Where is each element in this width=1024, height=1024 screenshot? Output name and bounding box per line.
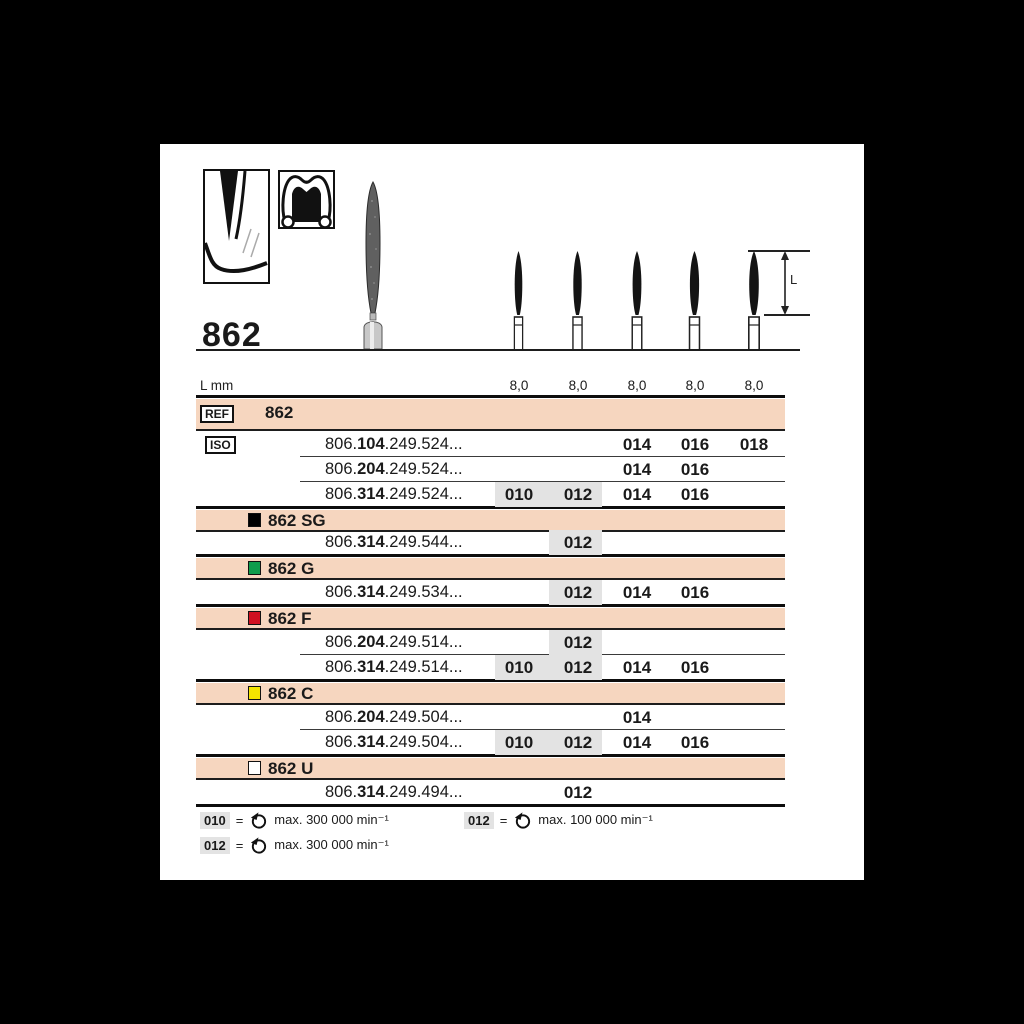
length-value: 8,0 — [745, 378, 764, 393]
grade-color-swatch — [248, 513, 261, 527]
application-thumbnail-margin — [203, 169, 270, 284]
iso-code: 806.314.249.514... — [325, 656, 463, 679]
size-value: 016 — [681, 483, 709, 506]
size-value: 014 — [623, 656, 651, 679]
iso-code: 806.314.249.494... — [325, 781, 463, 804]
size-value: 012 — [564, 483, 592, 506]
legend-item: 012 = max. 100 000 min⁻¹ — [464, 810, 653, 830]
size-value: 014 — [623, 458, 651, 481]
iso-code: 806.314.249.534... — [325, 581, 463, 604]
ref-box: REF — [200, 405, 234, 423]
iso-row: 806.204.249.514... 012 — [196, 631, 785, 654]
length-value: 8,0 — [569, 378, 588, 393]
bur-size-012-illustration — [567, 250, 588, 351]
legend-item: 012 = max. 300 000 min⁻¹ — [200, 835, 389, 855]
catalog-panel: L 862 L mm 8,0 8,0 8,0 8,0 8,0 REF 862 I… — [160, 144, 864, 880]
size-value: 010 — [505, 731, 533, 754]
length-value: 8,0 — [628, 378, 647, 393]
iso-code: 806.204.249.504... — [325, 706, 463, 729]
grade-color-swatch — [248, 761, 261, 775]
size-value: 016 — [681, 731, 709, 754]
size-value: 010 — [505, 483, 533, 506]
iso-code: 806.314.249.544... — [325, 531, 463, 554]
large-bur-illustration — [351, 179, 395, 351]
iso-row: 806.314.249.524... 010 012 014 016 — [196, 483, 785, 506]
size-value: 014 — [623, 483, 651, 506]
legend-equals: = — [236, 838, 244, 853]
size-value: 012 — [564, 781, 592, 804]
size-value: 014 — [623, 433, 651, 456]
dimension-label: L — [790, 272, 797, 287]
size-value: 014 — [623, 731, 651, 754]
rotation-speed-icon — [249, 811, 268, 830]
length-row-label: L mm — [200, 378, 233, 393]
iso-code: 806.104.249.524... — [325, 433, 463, 456]
length-dimension-marker — [744, 248, 814, 318]
grade-label: 862 U — [268, 759, 313, 779]
iso-code: 806.204.249.524... — [325, 458, 463, 481]
rotation-speed-icon — [513, 811, 532, 830]
legend-size-chip: 012 — [200, 837, 230, 854]
iso-code: 806.204.249.514... — [325, 631, 463, 654]
rotation-speed-icon — [249, 836, 268, 855]
grade-label: 862 G — [268, 559, 314, 579]
size-value: 012 — [564, 656, 592, 679]
size-value: 016 — [681, 458, 709, 481]
legend-size-chip: 012 — [464, 812, 494, 829]
iso-row: 806.204.249.524... 014 016 — [196, 458, 785, 481]
tooth-crown-illustration — [280, 172, 333, 227]
divider — [196, 395, 785, 398]
size-value: 018 — [740, 433, 768, 456]
divider — [196, 754, 785, 757]
iso-code: 806.314.249.524... — [325, 483, 463, 506]
iso-row: 806.104.249.524... 014 016 018 — [196, 433, 785, 456]
page-background: { "header": { "product_number": "862", "… — [0, 0, 1024, 1024]
iso-row: 806.314.249.534... 012 014 016 — [196, 581, 785, 604]
legend-size-chip: 010 — [200, 812, 230, 829]
divider — [300, 456, 785, 457]
iso-row: 806.314.249.514... 010 012 014 016 — [196, 656, 785, 679]
size-value: 012 — [564, 731, 592, 754]
length-value: 8,0 — [510, 378, 529, 393]
iso-row: 806.314.249.504... 010 012 014 016 — [196, 731, 785, 754]
iso-row: 806.314.249.494... 012 — [196, 781, 785, 804]
legend-text: max. 300 000 min⁻¹ — [274, 837, 389, 853]
length-value: 8,0 — [686, 378, 705, 393]
bur-size-010-illustration — [509, 250, 528, 351]
size-value: 016 — [681, 656, 709, 679]
divider — [196, 554, 785, 557]
tooth-margin-illustration — [205, 171, 268, 282]
ref-value: 862 — [265, 403, 293, 423]
divider — [196, 349, 800, 351]
size-value: 012 — [564, 531, 592, 554]
legend-equals: = — [236, 813, 244, 828]
legend-equals: = — [500, 813, 508, 828]
grade-color-swatch — [248, 611, 261, 625]
divider — [196, 506, 785, 509]
divider — [196, 429, 785, 431]
size-value: 014 — [623, 581, 651, 604]
grade-band-c: 862 C — [196, 683, 785, 703]
grade-label: 862 C — [268, 684, 313, 704]
size-value: 016 — [681, 433, 709, 456]
grade-band-u: 862 U — [196, 758, 785, 778]
grade-label: 862 SG — [268, 511, 326, 531]
iso-code: 806.314.249.504... — [325, 731, 463, 754]
legend-text: max. 100 000 min⁻¹ — [538, 812, 653, 828]
grade-color-swatch — [248, 561, 261, 575]
legend-item: 010 = max. 300 000 min⁻¹ — [200, 810, 389, 830]
ref-band: REF 862 — [196, 399, 785, 429]
grade-band-f: 862 F — [196, 608, 785, 628]
divider — [196, 604, 785, 607]
bur-size-016-illustration — [683, 250, 706, 351]
divider — [196, 804, 785, 807]
grade-band-g: 862 G — [196, 558, 785, 578]
iso-row: 806.314.249.544... 012 — [196, 531, 785, 554]
size-value: 014 — [623, 706, 651, 729]
size-value: 012 — [564, 631, 592, 654]
grade-color-swatch — [248, 686, 261, 700]
size-value: 016 — [681, 581, 709, 604]
legend-text: max. 300 000 min⁻¹ — [274, 812, 389, 828]
grade-band-sg: 862 SG — [196, 510, 785, 530]
divider — [196, 679, 785, 682]
size-value: 010 — [505, 656, 533, 679]
grade-label: 862 F — [268, 609, 311, 629]
bur-size-014-illustration — [626, 250, 648, 351]
application-thumbnail-crown — [278, 170, 335, 229]
iso-row: 806.204.249.504... 014 — [196, 706, 785, 729]
size-value: 012 — [564, 581, 592, 604]
